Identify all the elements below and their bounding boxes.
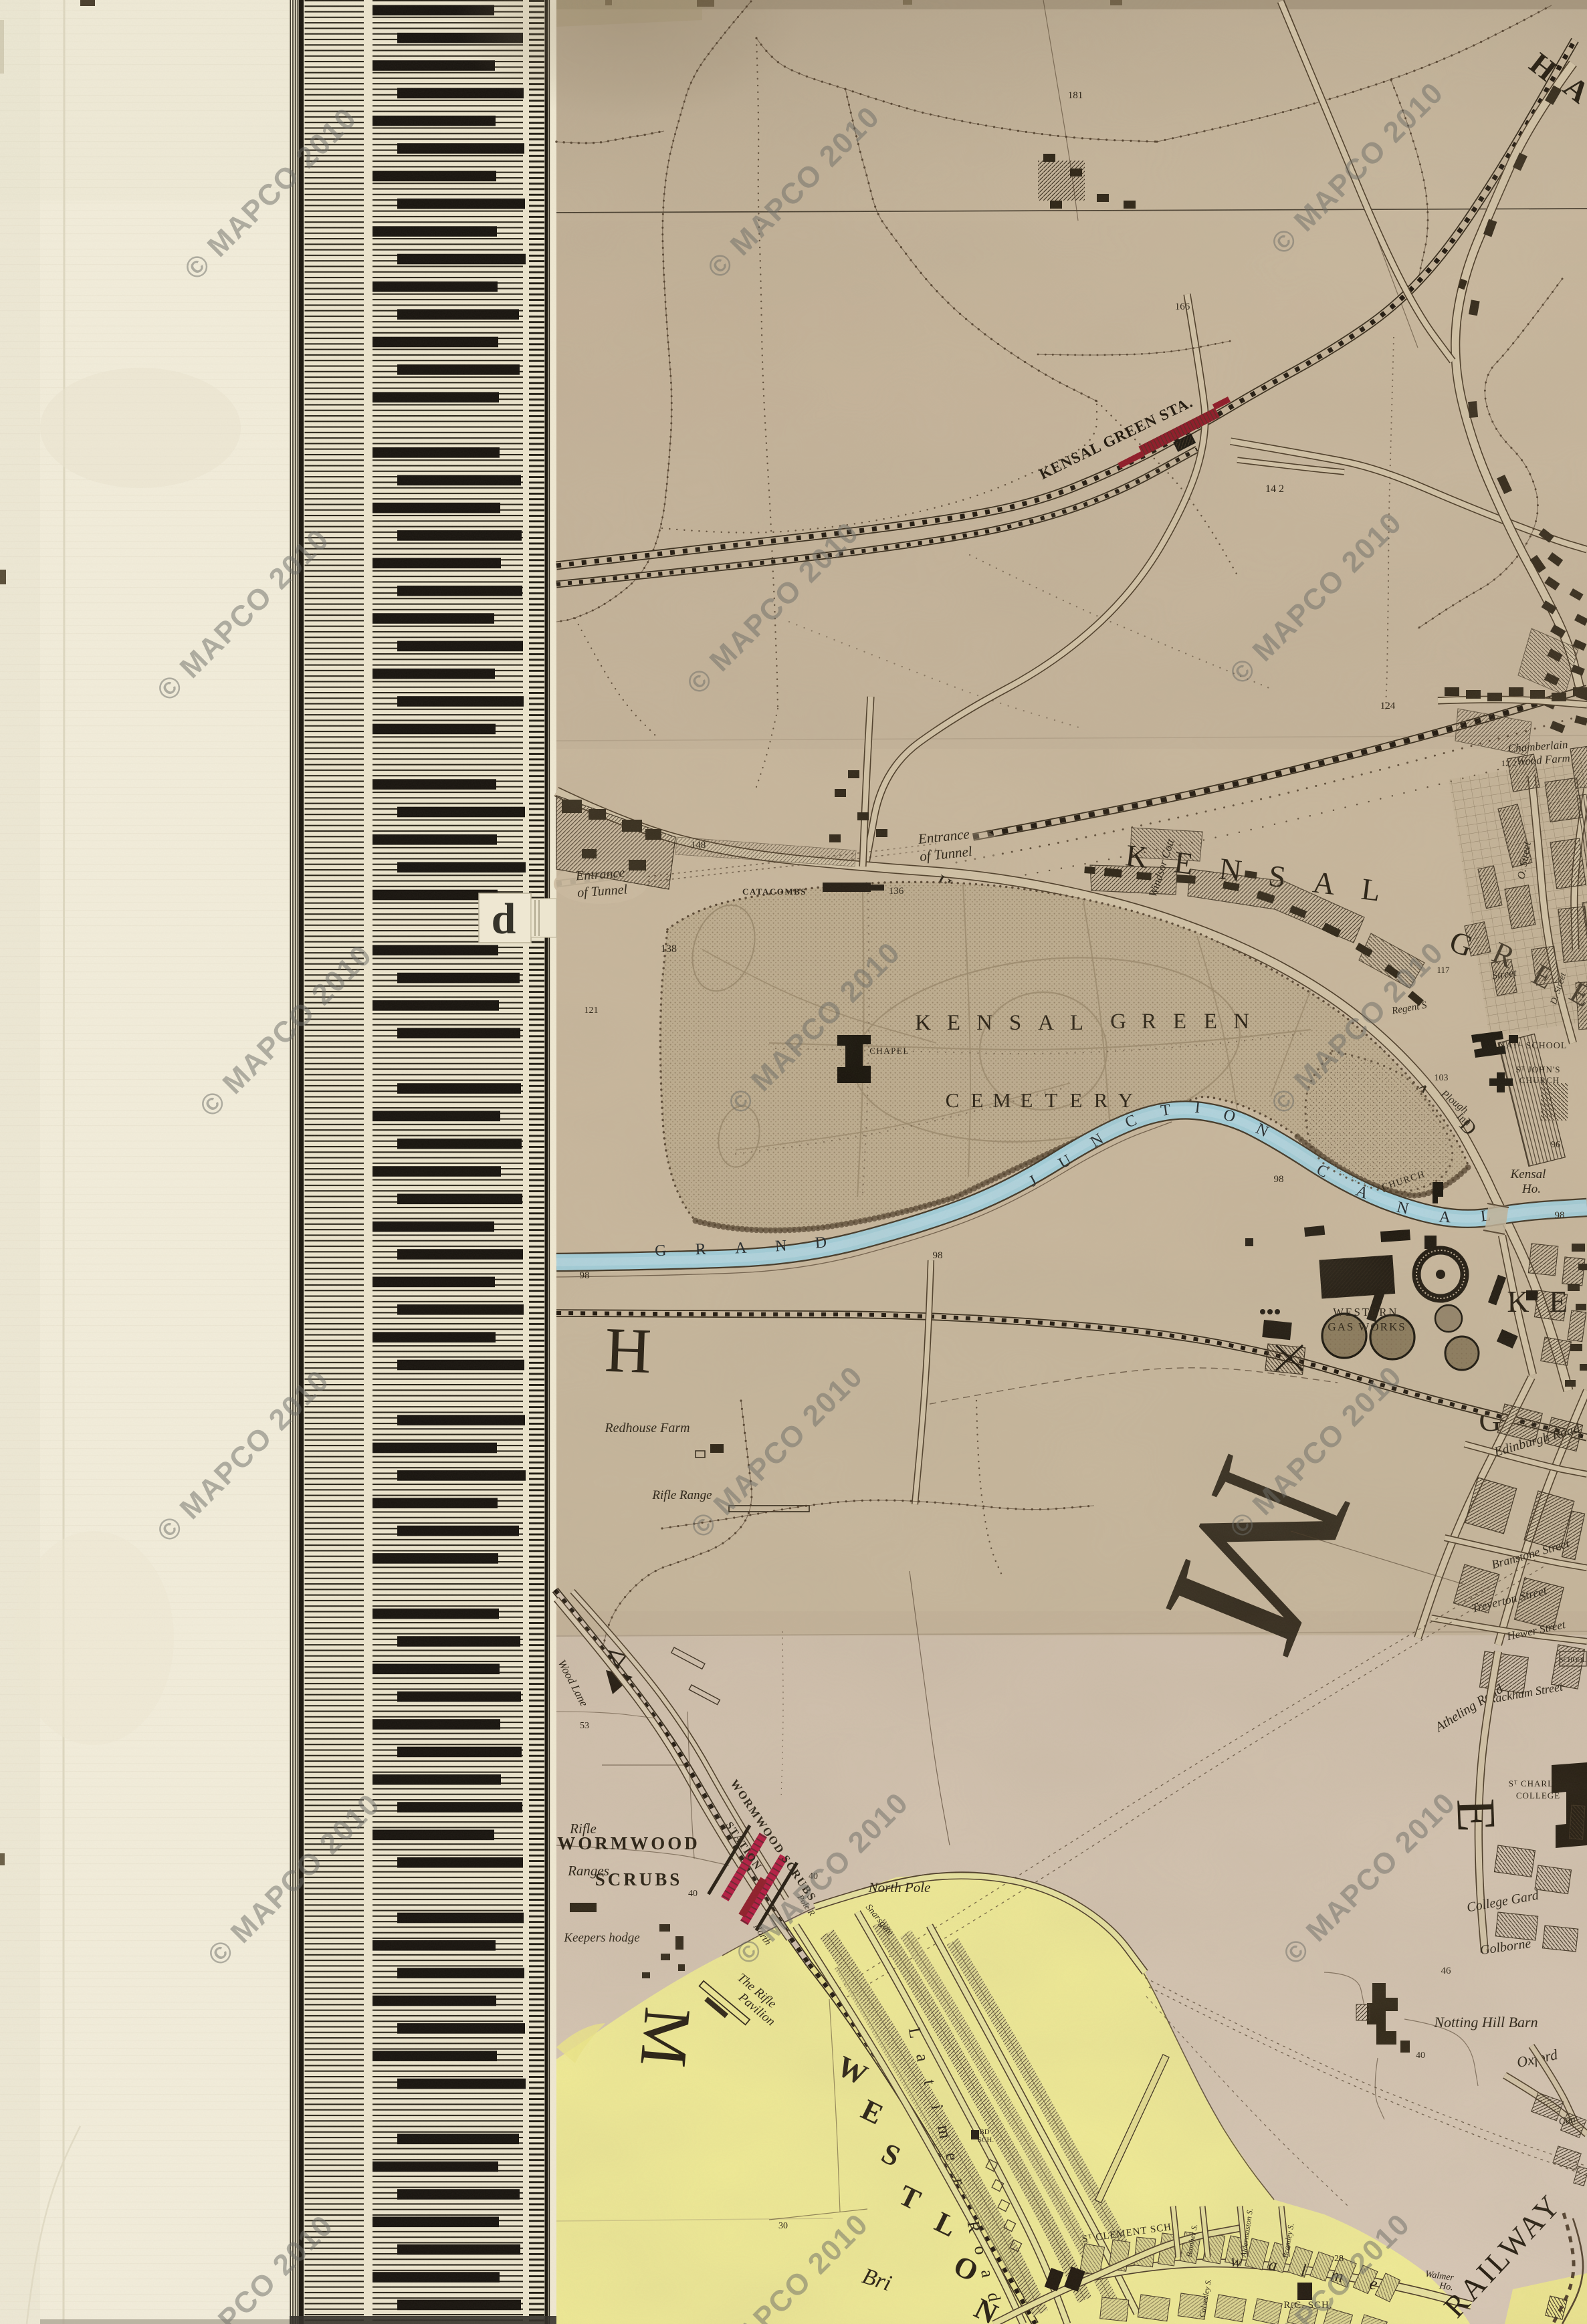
- svg-text:d: d: [492, 895, 516, 943]
